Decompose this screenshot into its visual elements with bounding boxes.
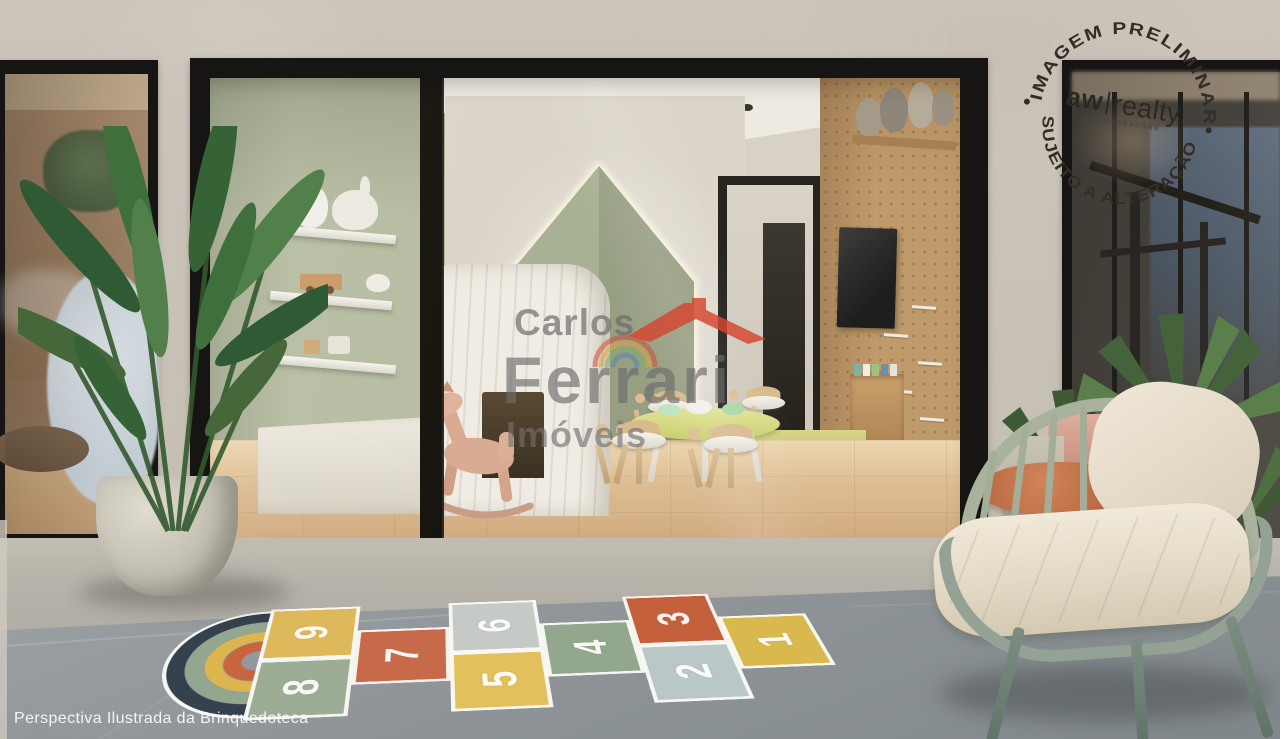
hopscotch-tile: 3	[622, 593, 729, 645]
toy-on-table	[722, 403, 744, 415]
hopscotch-number: 3	[646, 611, 702, 626]
hopscotch-number: 4	[562, 639, 619, 656]
hopscotch-number: 6	[468, 617, 522, 633]
hopscotch-number: 7	[374, 646, 430, 663]
plush-toy	[908, 82, 934, 128]
plush-bunny	[332, 190, 378, 230]
hopscotch-number: 8	[270, 678, 331, 697]
hopscotch-tile: 9	[258, 606, 360, 660]
plush-toy	[856, 98, 882, 136]
glass-mullion	[420, 78, 444, 544]
plush-toy	[366, 274, 390, 292]
toy-on-table	[658, 404, 680, 416]
hopscotch-number: 2	[663, 662, 724, 680]
chair-seat-rail	[938, 515, 1280, 670]
left-edge-highlight	[0, 520, 7, 739]
wood-toy	[328, 336, 350, 354]
book-spines	[854, 364, 897, 376]
plush-toy	[880, 88, 908, 132]
plush-toy	[932, 90, 954, 126]
hopscotch-number: 5	[471, 670, 529, 688]
hopscotch-tile: 6	[449, 600, 544, 653]
hopscotch-tile: 7	[351, 627, 450, 685]
hopscotch-tile: 4	[540, 620, 646, 677]
chair-leg	[1225, 615, 1274, 738]
rendering-image: 9 8 7 6 5 4 3 2 1	[0, 0, 1280, 739]
toy-on-table	[686, 400, 712, 414]
tv-screen	[837, 227, 898, 328]
caption: Perspectiva Ilustrada da Brinquedoteca	[14, 710, 308, 728]
hopscotch-number: 1	[745, 632, 805, 648]
bunny-ear	[360, 176, 370, 198]
preliminary-image-stamp: IMAGEM PRELIMINAR SUJEITO A ALTERAÇÃO • …	[1008, 2, 1237, 231]
hopscotch-tile: 5	[450, 649, 554, 711]
hopscotch-number: 9	[283, 624, 339, 640]
brand-aw: aw	[1064, 83, 1105, 115]
bird-of-paradise-plant	[18, 126, 328, 546]
brand-divider	[1105, 92, 1111, 115]
outdoor-chair-group	[938, 398, 1280, 739]
